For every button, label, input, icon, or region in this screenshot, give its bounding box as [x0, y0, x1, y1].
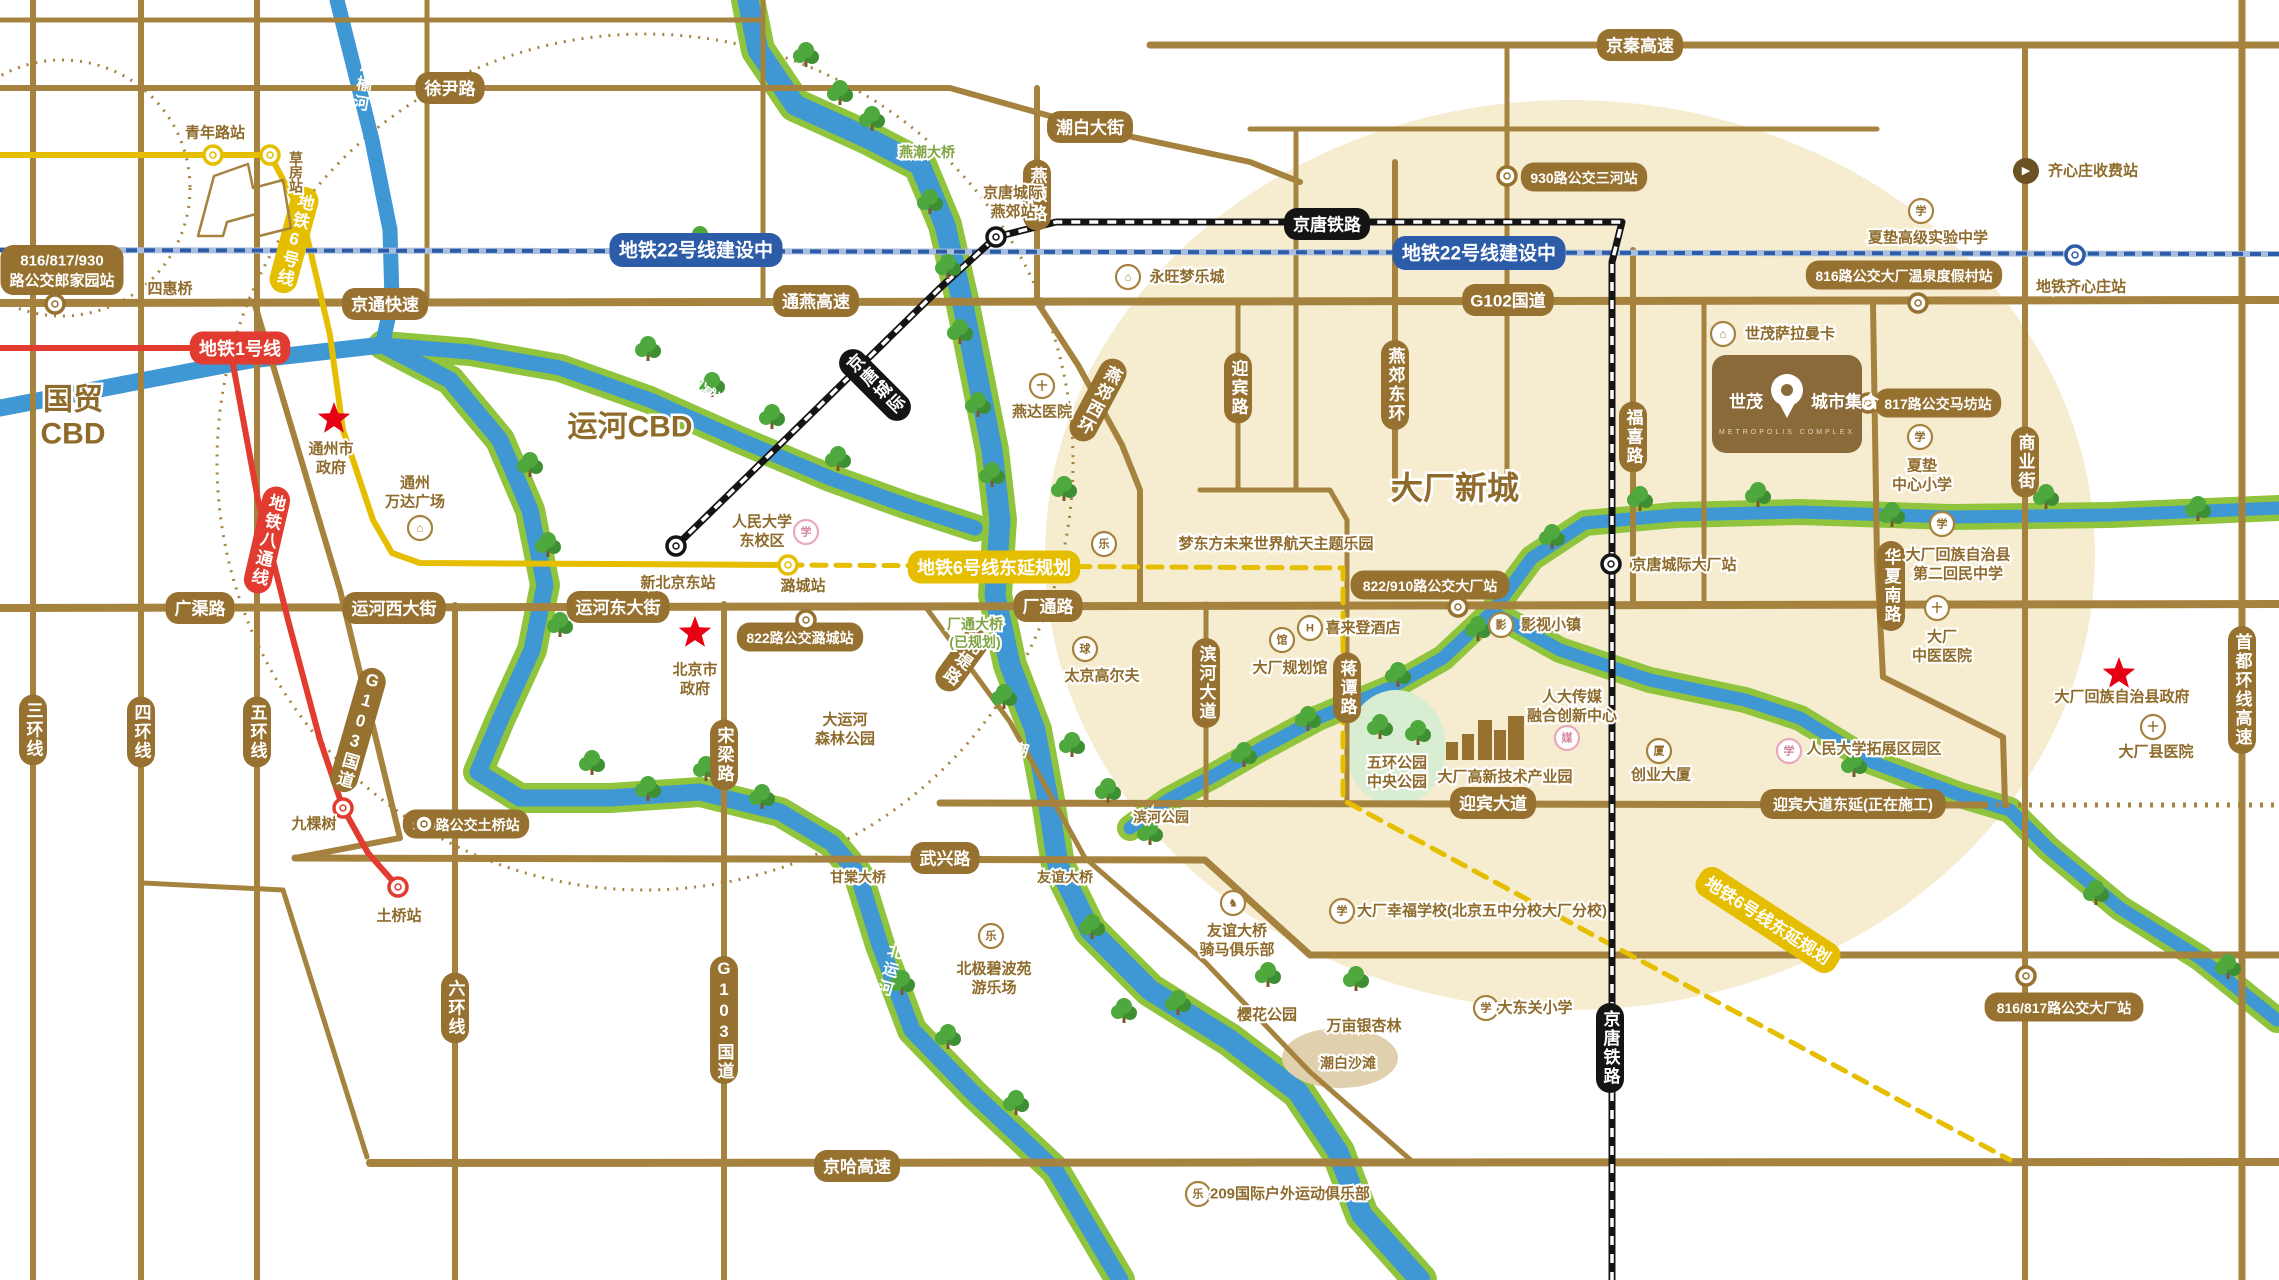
svg-text:京哈高速: 京哈高速: [823, 1157, 891, 1177]
poi-209国际户外运动俱乐部: 乐209国际户外运动俱乐部: [1186, 1182, 1370, 1206]
poi-友谊大桥: 友谊大桥: [1037, 869, 1094, 885]
svg-text:乐: 乐: [1099, 537, 1110, 551]
poi-青年路站: 青年路站: [185, 124, 245, 142]
badge-蒋谭路: 蒋谭路: [1333, 653, 1361, 724]
svg-text:G102国道: G102国道: [1470, 291, 1546, 311]
svg-text:草房站: 草房站: [288, 150, 304, 194]
svg-text:土桥站: 土桥站: [376, 907, 421, 925]
qingnianlu-station-marker: [204, 146, 222, 164]
poi-草房站: 草房站: [288, 150, 304, 194]
badge-G102国道: G102国道: [1462, 284, 1553, 316]
badge-京通快速: 京通快速: [342, 288, 428, 320]
svg-text:媒: 媒: [1561, 731, 1574, 745]
badge-地铁6号线东延规划: 地铁6号线东延规划: [908, 551, 1080, 584]
badge-816/817路公交大厂站: 816/817路公交大厂站: [1985, 993, 2144, 1022]
svg-text:中医医院: 中医医院: [1912, 647, 1972, 665]
langjiayuan-bus-marker: [46, 295, 64, 313]
badge-京秦高速: 京秦高速: [1597, 29, 1683, 61]
svg-text:⌂: ⌂: [1125, 272, 1132, 284]
svg-text:学: 学: [1784, 744, 1795, 758]
svg-text:融合创新中心: 融合创新中心: [1527, 707, 1617, 725]
svg-text:夏垫高级实验中学: 夏垫高级实验中学: [1867, 229, 1988, 247]
poi-人民大学东校区: 学人民大学东校区: [732, 513, 818, 550]
poi-大运河森林公园: 大运河森林公园: [815, 711, 875, 748]
svg-text:潮白沙滩: 潮白沙滩: [1320, 1055, 1376, 1071]
tree-icon: [1059, 732, 1085, 757]
badge-运河东大街: 运河东大街: [567, 591, 670, 623]
svg-text:METROPOLIS COMPLEX: METROPOLIS COMPLEX: [1719, 429, 1855, 436]
svg-text:地铁齐心庄站: 地铁齐心庄站: [2036, 278, 2126, 296]
badge-武兴路: 武兴路: [911, 842, 980, 874]
lucheng-bus-marker: [797, 611, 815, 629]
svg-text:太京高尔夫: 太京高尔夫: [1064, 667, 1140, 685]
svg-text:华夏南路: 华夏南路: [1882, 547, 1902, 624]
poi-新北京东站: 新北京东站: [640, 574, 715, 592]
badge-迎宾大道: 迎宾大道: [1450, 787, 1536, 819]
svg-text:822/910路公交大厂站: 822/910路公交大厂站: [1363, 578, 1498, 594]
badge-六环线: 六环线: [441, 973, 469, 1044]
lucheng-station-marker: [779, 556, 797, 574]
badge-G103国道: G103国道: [710, 956, 738, 1084]
svg-text:首都环线高速: 首都环线高速: [2233, 632, 2254, 747]
tuqiao-bus-marker: [415, 815, 433, 833]
svg-text:209国际户外运动俱乐部: 209国际户外运动俱乐部: [1210, 1185, 1370, 1203]
badge-华夏南路: 华夏南路: [1877, 541, 1905, 631]
government-star-icon: [2103, 657, 2135, 688]
poi-九棵树: 九棵树: [290, 815, 336, 833]
caofang-station-marker: [261, 146, 279, 164]
svg-text:学: 学: [1337, 904, 1348, 918]
svg-text:世茂: 世茂: [1729, 392, 1763, 412]
dachang-816-bus-marker: [2017, 967, 2035, 985]
svg-text:万亩银杏林: 万亩银杏林: [1325, 1017, 1402, 1035]
svg-text:万达广场: 万达广场: [384, 493, 445, 511]
svg-text:北京市: 北京市: [672, 661, 717, 679]
badge-四环线: 四环线: [127, 697, 155, 768]
svg-text:学: 学: [1937, 517, 1948, 531]
poi-大厂回族自治县政府: 大厂回族自治县政府: [2054, 688, 2189, 706]
svg-text:816路公交大厂温泉度假村站: 816路公交大厂温泉度假村站: [1815, 268, 1992, 284]
svg-text:人民大学: 人民大学: [732, 513, 792, 531]
poi-影视小镇: 影影视小镇: [1489, 613, 1581, 637]
badge-地铁6号线: 地铁6号线: [266, 184, 321, 297]
badge-滨河大道: 滨河大道: [1192, 638, 1220, 728]
svg-text:地铁22号线建设中: 地铁22号线建设中: [1402, 242, 1556, 265]
badge-地铁22号线建设中: 地铁22号线建设中: [609, 233, 782, 267]
poi-齐心庄收费站: ▶齐心庄收费站: [2013, 158, 2138, 184]
svg-text:人大传媒: 人大传媒: [1542, 688, 1603, 706]
svg-text:喜来登酒店: 喜来登酒店: [1325, 619, 1400, 637]
svg-text:潮白大街: 潮白大街: [1056, 118, 1124, 138]
svg-text:乐: 乐: [986, 929, 997, 943]
svg-text:甘棠大桥: 甘棠大桥: [830, 869, 887, 885]
svg-text:政府: 政府: [680, 680, 710, 698]
poi-燕潮大桥: 燕潮大桥: [899, 144, 956, 160]
tree-icon: [759, 404, 785, 429]
svg-text:学: 学: [1916, 204, 1927, 218]
location-map: 京秦高速徐尹路潮白大街京通快速通燕高速G102国道广渠路运河西大街运河东大街厂通…: [0, 0, 2279, 1280]
svg-text:822路公交潞城站: 822路公交潞城站: [746, 630, 853, 646]
svg-text:⌂: ⌂: [417, 523, 424, 535]
svg-text:816/817/930: 816/817/930: [20, 253, 103, 270]
svg-text:通燕高速: 通燕高速: [782, 292, 850, 312]
svg-text:燕达医院: 燕达医院: [1012, 403, 1072, 421]
svg-text:⌂: ⌂: [1720, 329, 1727, 341]
dachang-bus-marker: [1449, 598, 1467, 616]
svg-text:友谊大桥: 友谊大桥: [1037, 869, 1094, 885]
svg-text:817路公交马坊站: 817路公交马坊站: [1884, 396, 1991, 412]
svg-text:四环线: 四环线: [132, 704, 152, 761]
svg-text:京唐铁路: 京唐铁路: [1293, 215, 1362, 235]
svg-text:六环线: 六环线: [446, 978, 466, 1036]
svg-text:游乐场: 游乐场: [971, 979, 1016, 997]
qixinzhuang-station-marker: [2066, 246, 2084, 264]
government-star-icon: [679, 616, 711, 647]
svg-text:梦东方未来世界航天主题乐园: 梦东方未来世界航天主题乐园: [1178, 535, 1373, 553]
tree-icon: [1111, 998, 1137, 1023]
badge-通燕高速: 通燕高速: [773, 285, 859, 317]
svg-text:十: 十: [1932, 601, 1943, 615]
svg-text:夏垫: 夏垫: [1906, 457, 1937, 475]
svg-text:世茂萨拉曼卡: 世茂萨拉曼卡: [1745, 325, 1835, 343]
svg-text:蒋谭路: 蒋谭路: [1338, 659, 1358, 716]
tree-icon: [635, 336, 661, 361]
svg-text:影: 影: [1496, 618, 1507, 632]
svg-text:运河西大街: 运河西大街: [352, 599, 437, 619]
badge-816路公交大厂温泉度假村站: 816路公交大厂温泉度假村站: [1806, 261, 2002, 290]
svg-text:京唐城际: 京唐城际: [841, 350, 909, 418]
svg-text:齐心庄收费站: 齐心庄收费站: [2048, 162, 2138, 180]
svg-text:京秦高速: 京秦高速: [1606, 36, 1674, 56]
svg-text:运河东大街: 运河东大街: [576, 598, 661, 618]
svg-text:大厂幸福学校(北京五中分校大厂分校): 大厂幸福学校(北京五中分校大厂分校): [1357, 902, 1607, 920]
svg-text:通州市: 通州市: [308, 440, 353, 458]
svg-text:北极碧波苑: 北极碧波苑: [956, 960, 1031, 978]
badge-迎宾大道东延(正在施工): 迎宾大道东延(正在施工): [1760, 789, 1945, 819]
new-beijing-east-station-marker: [667, 537, 685, 555]
badge-燕郊东环: 燕郊东环: [1381, 340, 1409, 430]
poi-喜来登酒店: H喜来登酒店: [1298, 616, 1401, 640]
shimao-logo: 世茂城市集合METROPOLIS COMPLEX: [1712, 355, 1880, 453]
svg-text:816/817路公交大厂站: 816/817路公交大厂站: [1997, 1000, 2132, 1016]
svg-text:学: 学: [801, 525, 812, 539]
svg-text:京通快速: 京通快速: [351, 295, 419, 315]
svg-text:十: 十: [2148, 720, 2159, 734]
svg-text:乐: 乐: [1193, 1187, 1204, 1201]
poi-北京市政府: 北京市政府: [672, 661, 717, 698]
svg-text:燕郊站: 燕郊站: [990, 203, 1035, 221]
svg-text:地铁6号线东延规划: 地铁6号线东延规划: [917, 557, 1071, 578]
sanhe-bus-marker: [1498, 167, 1516, 185]
badge-816/817/930路公交郎家园站: 816/817/930路公交郎家园站: [1, 245, 124, 295]
svg-text:福喜路: 福喜路: [1624, 407, 1645, 465]
jingha-expwy: [370, 1162, 2279, 1163]
svg-text:骑马俱乐部: 骑马俱乐部: [1199, 941, 1274, 959]
svg-text:十: 十: [1037, 379, 1048, 393]
svg-text:人民大学拓展区园区: 人民大学拓展区园区: [1806, 740, 1941, 758]
svg-text:通州: 通州: [400, 475, 430, 492]
badge-817路公交马坊站: 817路公交马坊站: [1875, 389, 2001, 418]
yanjiao-rail-station-marker: [987, 228, 1005, 246]
badge-运河西大街: 运河西大街: [343, 592, 446, 624]
map-canvas: 京秦高速徐尹路潮白大街京通快速通燕高速G102国道广渠路运河西大街运河东大街厂通…: [0, 0, 2279, 1280]
svg-text:G103国道: G103国道: [715, 959, 735, 1081]
svg-text:大厂规划馆: 大厂规划馆: [1252, 659, 1327, 677]
svg-text:▶: ▶: [2022, 165, 2031, 177]
svg-text:城市集合: 城市集合: [1811, 392, 1880, 412]
badge-迎宾路: 迎宾路: [1224, 353, 1252, 424]
badge-京唐铁路: 京唐铁路: [1596, 1003, 1624, 1093]
svg-text:徐尹路: 徐尹路: [424, 79, 477, 99]
badge-福喜路: 福喜路: [1619, 402, 1647, 473]
svg-text:迎宾大道东延(正在施工): 迎宾大道东延(正在施工): [1773, 796, 1933, 814]
badge-徐尹路: 徐尹路: [416, 72, 485, 104]
svg-text:地铁22号线建设中: 地铁22号线建设中: [619, 239, 773, 262]
svg-text:大厂回族自治县政府: 大厂回族自治县政府: [2054, 688, 2189, 706]
svg-text:大厂回族自治县: 大厂回族自治县: [1905, 546, 2010, 564]
svg-text:五环线: 五环线: [248, 704, 268, 761]
svg-text:燕郊东环: 燕郊东环: [1386, 346, 1406, 423]
svg-text:厂通大桥: 厂通大桥: [947, 616, 1004, 632]
badge-三环线: 三环线: [19, 695, 47, 766]
area-label-国贸: 国贸: [43, 384, 103, 417]
svg-text:厂通路: 厂通路: [1023, 597, 1075, 617]
badge-地铁1号线: 地铁1号线: [190, 332, 290, 365]
svg-text:燕潮大桥: 燕潮大桥: [899, 144, 956, 160]
svg-text:中央公园: 中央公园: [1367, 773, 1427, 791]
svg-text:政府: 政府: [316, 459, 346, 477]
badge-822/910路公交大厂站: 822/910路公交大厂站: [1351, 571, 1510, 600]
svg-text:迎宾路: 迎宾路: [1229, 358, 1249, 416]
poi-潞城站: 潞城站: [780, 577, 825, 595]
poi-世茂萨拉曼卡: ⌂世茂萨拉曼卡: [1711, 322, 1835, 346]
svg-text:中心小学: 中心小学: [1892, 476, 1952, 494]
poi-京唐城际大厂站: 京唐城际大厂站: [1631, 556, 1736, 574]
tree-icon: [793, 42, 819, 67]
poi-燕达医院: 十燕达医院: [1012, 374, 1072, 421]
jingtong-tongyan-g102: [0, 300, 2279, 303]
badge-京唐铁路: 京唐铁路: [1284, 208, 1370, 240]
badge-地铁22号线建设中: 地铁22号线建设中: [1392, 236, 1565, 270]
poi-通州万达广场: ⌂通州万达广场: [384, 475, 445, 541]
svg-text:学: 学: [1481, 1001, 1492, 1015]
tree-icon: [1255, 962, 1281, 987]
poi-甘棠大桥: 甘棠大桥: [830, 869, 887, 885]
svg-text:馆: 馆: [1277, 633, 1288, 647]
svg-text:宋梁路: 宋梁路: [715, 725, 736, 783]
svg-text:九棵树: 九棵树: [290, 815, 336, 833]
poi-大东关小学: 学大东关小学: [1474, 996, 1573, 1020]
svg-text:四惠桥: 四惠桥: [147, 280, 193, 298]
poi-万亩银杏林: 万亩银杏林: [1325, 1017, 1402, 1035]
badge-京哈高速: 京哈高速: [814, 1150, 900, 1182]
svg-text:H: H: [1306, 623, 1314, 635]
svg-text:大厂县医院: 大厂县医院: [2118, 743, 2193, 761]
wenquan-bus-marker: [1909, 294, 1927, 312]
svg-text:大东关小学: 大东关小学: [1497, 999, 1572, 1017]
area-label-大厂新城: 大厂新城: [1391, 470, 1519, 506]
svg-text:友谊大桥: 友谊大桥: [1207, 922, 1268, 940]
svg-text:滨河大道: 滨河大道: [1197, 644, 1217, 721]
area-label-运河CBD: 运河CBD: [568, 411, 693, 444]
svg-text:京唐铁路: 京唐铁路: [1601, 1009, 1621, 1086]
poi-土桥站: 土桥站: [376, 907, 421, 925]
badge-广渠路: 广渠路: [166, 592, 235, 624]
svg-text:第二回民中学: 第二回民中学: [1913, 565, 2003, 583]
badge-地铁八通线: 地铁八通线: [241, 484, 293, 597]
tree-icon: [579, 750, 605, 775]
poi-通州市政府: 通州市政府: [308, 440, 353, 477]
poi-大厂县医院: 十大厂县医院: [2118, 715, 2193, 761]
svg-text:新北京东站: 新北京东站: [640, 574, 715, 592]
svg-text:广渠路: 广渠路: [175, 599, 227, 619]
svg-text:930路公交三河站: 930路公交三河站: [1530, 170, 1637, 186]
svg-text:三环线: 三环线: [24, 702, 44, 759]
tuqiao-station-marker: [389, 878, 407, 896]
svg-text:森林公园: 森林公园: [815, 730, 875, 748]
svg-text:武兴路: 武兴路: [920, 849, 972, 869]
svg-text:滨河公园: 滨河公园: [1133, 809, 1189, 825]
svg-text:创业大厦: 创业大厦: [1630, 766, 1692, 784]
svg-text:潞城站: 潞城站: [780, 577, 825, 595]
tree-icon: [827, 80, 853, 105]
badge-厂通路: 厂通路: [1014, 590, 1083, 622]
badge-宋梁路: 宋梁路: [710, 720, 738, 791]
poi-滨河公园: 滨河公园: [1133, 809, 1189, 825]
svg-text:青年路站: 青年路站: [185, 124, 245, 142]
badge-商业街: 商业街: [2011, 427, 2039, 498]
svg-text:五环公园: 五环公园: [1367, 755, 1427, 772]
badge-930路公交三河站: 930路公交三河站: [1521, 163, 1647, 192]
badge-潮白大街: 潮白大街: [1047, 111, 1133, 143]
svg-text:樱花公园: 樱花公园: [1237, 1006, 1297, 1024]
svg-text:♞: ♞: [1228, 898, 1238, 910]
svg-text:路公交郎家园站: 路公交郎家园站: [9, 272, 114, 290]
dachang-rail-station-marker: [1602, 555, 1620, 573]
svg-text:京唐城际大厂站: 京唐城际大厂站: [1631, 556, 1736, 574]
badge-G103国道: G103国道: [327, 665, 389, 796]
poi-永旺梦乐城: ⌂永旺梦乐城: [1116, 265, 1225, 289]
poi-大厂高新技术产业园: 大厂高新技术产业园: [1437, 768, 1572, 786]
svg-text:影视小镇: 影视小镇: [1521, 616, 1581, 634]
svg-text:(已规划): (已规划): [949, 634, 1000, 650]
svg-text:大厂高新技术产业园: 大厂高新技术产业园: [1437, 768, 1572, 786]
jiukeshu-station-marker: [334, 799, 352, 817]
poi-地铁齐心庄站: 地铁齐心庄站: [2036, 278, 2126, 296]
svg-text:学: 学: [1915, 430, 1926, 444]
poi-北极碧波苑游乐场: 乐北极碧波苑游乐场: [956, 924, 1031, 997]
poi-樱花公园: 樱花公园: [1237, 1006, 1297, 1024]
svg-text:大运河: 大运河: [822, 711, 867, 729]
svg-text:地铁1号线: 地铁1号线: [199, 338, 281, 359]
svg-text:京唐城际: 京唐城际: [983, 184, 1043, 202]
area-label-CBD: CBD: [41, 418, 106, 451]
svg-text:迎宾大道: 迎宾大道: [1459, 794, 1527, 814]
svg-text:永旺梦乐城: 永旺梦乐城: [1148, 268, 1224, 286]
svg-text:商业街: 商业街: [2016, 432, 2037, 490]
poi-潮白沙滩: 潮白沙滩: [1320, 1055, 1376, 1071]
badge-五环线: 五环线: [243, 697, 271, 768]
svg-text:大厂: 大厂: [1927, 628, 1957, 646]
cctv-building-icon: [198, 164, 291, 236]
svg-text:东校区: 东校区: [739, 532, 784, 550]
poi-四惠桥: 四惠桥: [147, 280, 193, 298]
svg-text:球: 球: [1080, 642, 1092, 656]
badge-首都环线高速: 首都环线高速: [2228, 626, 2256, 754]
svg-text:厦: 厦: [1654, 745, 1666, 758]
poi-大厂幸福学校(北京五中分校大厂分校): 学大厂幸福学校(北京五中分校大厂分校): [1330, 899, 1607, 923]
